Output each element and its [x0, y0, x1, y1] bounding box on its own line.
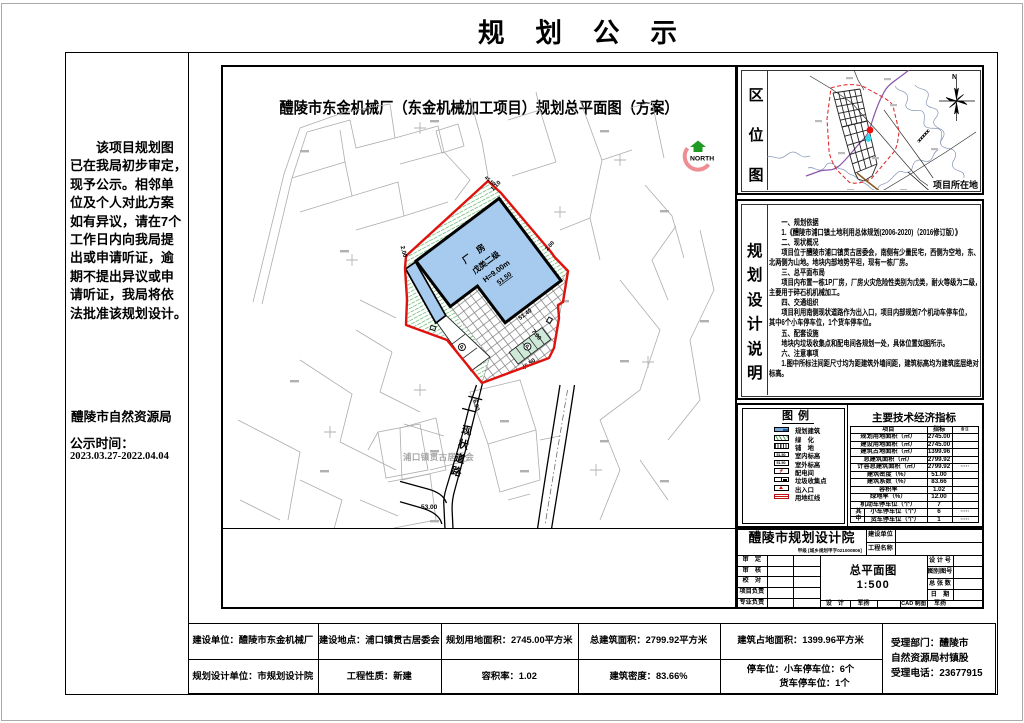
svg-text:NORTH: NORTH [690, 156, 714, 163]
svg-text:53.00: 53.00 [421, 504, 438, 511]
svg-text:2.00: 2.00 [399, 245, 408, 258]
svg-text:N: N [952, 74, 957, 81]
svg-text:路: 路 [450, 464, 464, 479]
svg-text:项目所在地: 项目所在地 [933, 179, 978, 190]
svg-text:状: 状 [457, 437, 471, 452]
svg-text:2.00: 2.00 [544, 240, 556, 252]
svg-text:道: 道 [453, 451, 467, 466]
